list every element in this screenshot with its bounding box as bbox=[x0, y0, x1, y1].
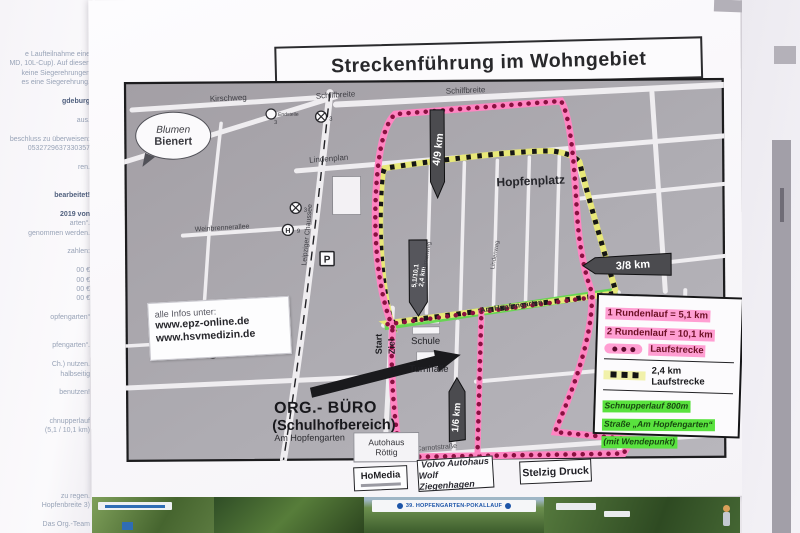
paper-text-line: arten“. bbox=[0, 219, 90, 228]
banner-logo-icon bbox=[397, 503, 403, 509]
ziel-label: Ziel bbox=[387, 339, 397, 355]
banner-text: 39. HOPFENGARTEN-POKALLAUF bbox=[406, 503, 502, 509]
right-paper bbox=[742, 0, 800, 533]
paper-text-line bbox=[0, 200, 90, 209]
paper-text-line: Ch.) nutzen. bbox=[0, 360, 90, 369]
place-label-schule: Schule bbox=[411, 336, 440, 347]
paper-text-line bbox=[0, 454, 90, 463]
paper-text-line: opfengarten“ bbox=[0, 313, 90, 322]
paper-text-line: pfengarten“. bbox=[0, 341, 90, 350]
place-label-hopfenplatz: Hopfenplatz bbox=[496, 173, 565, 190]
paper-text-line bbox=[0, 435, 90, 444]
small-sign bbox=[556, 503, 596, 510]
street-label-schilfbreite-2: Schilfbreite bbox=[446, 85, 486, 96]
paper-text-line bbox=[0, 511, 90, 520]
paper-text-line: benutzen! bbox=[0, 388, 90, 397]
legend-schnupperlauf-street: Straße „Am Hopfengarten“ bbox=[602, 419, 715, 431]
right-paper-bar bbox=[772, 140, 791, 533]
paper-text-line: ren. bbox=[0, 163, 90, 172]
paper-text-line bbox=[0, 332, 90, 341]
autohaus-line2: Röttig bbox=[375, 447, 397, 457]
pink-route-symbol bbox=[604, 343, 642, 354]
schule-building bbox=[413, 327, 440, 334]
right-paper-block bbox=[774, 46, 796, 64]
photo-banner: 39. HOPFENGARTEN-POKALLAUF bbox=[364, 497, 544, 533]
map-legend: 1 Rundenlauf = 5,1 km 2 Rundenlauf = 10,… bbox=[593, 293, 744, 439]
start-label: Start bbox=[374, 334, 384, 355]
blue-sign bbox=[122, 522, 133, 530]
paper-text-line: gdeburg bbox=[0, 97, 90, 106]
paper-text-line: Das Org.-Team bbox=[0, 520, 90, 529]
route-poster: Streckenführung im Wohngebiet bbox=[88, 0, 743, 500]
paper-text-line: chnupperlauf bbox=[0, 417, 90, 426]
small-banner bbox=[98, 502, 172, 510]
paper-text-line: zahlen: bbox=[0, 247, 90, 256]
svg-text:3: 3 bbox=[274, 120, 277, 126]
paper-text-line bbox=[0, 172, 90, 181]
paper-text-line bbox=[0, 323, 90, 332]
org-line1: ORG.- BÜRO bbox=[274, 397, 377, 417]
info-box: alle Infos unter: www.epz-online.de www.… bbox=[147, 296, 292, 361]
paper-text-line: Hopfenbreite 3) bbox=[0, 501, 90, 510]
paper-text-line: halbseitig bbox=[0, 370, 90, 379]
paper-text-line: keine Siegerehrungen bbox=[0, 69, 90, 78]
sponsor-volvo-line2: Wolf Ziegenhagen bbox=[418, 466, 493, 492]
sponsor-homedia-name: HoMedia bbox=[361, 470, 401, 482]
paper-text-line: 00 € bbox=[0, 285, 90, 294]
paper-text-line bbox=[0, 153, 90, 162]
paper-text-line: 00 € bbox=[0, 276, 90, 285]
paper-text-line bbox=[0, 304, 90, 313]
parking-icon: P bbox=[320, 252, 334, 266]
legend-schnupperlauf: Schnupperlauf 800m bbox=[603, 400, 691, 412]
paper-text-line: es eine Siegerehrung. bbox=[0, 78, 90, 87]
legend-wendepunkt: (mit Wendepunkt) bbox=[601, 436, 677, 448]
legend-divider bbox=[603, 389, 733, 394]
paper-text-line bbox=[0, 351, 90, 360]
building bbox=[332, 176, 360, 214]
paper-text-line: 0532729637330357 bbox=[0, 144, 90, 153]
sponsor-volvo: Volvo Autohaus Wolf Ziegenhagen bbox=[417, 456, 495, 492]
photo-trees bbox=[214, 497, 364, 533]
paper-text-line bbox=[0, 379, 90, 388]
banner-logo-icon bbox=[505, 503, 511, 509]
sponsor-homedia-subtitle bbox=[361, 482, 401, 487]
paper-text-line bbox=[0, 125, 90, 134]
paper-text-line bbox=[0, 257, 90, 266]
legend-round1: 1 Rundenlauf = 5,1 km bbox=[605, 307, 710, 322]
legend-laufstrecke-2: Laufstrecke bbox=[651, 376, 704, 387]
legend-divider bbox=[604, 358, 734, 363]
event-banner: 39. HOPFENGARTEN-POKALLAUF bbox=[372, 500, 536, 512]
paper-text-line bbox=[0, 445, 90, 454]
paper-text-line: 00 € bbox=[0, 266, 90, 275]
yellow-route-symbol bbox=[603, 370, 645, 380]
paper-text-line: 2019 von bbox=[0, 210, 90, 219]
paper-text-line bbox=[0, 398, 90, 407]
photo-signs bbox=[92, 497, 214, 533]
street-label-kirschweg: Kirschweg bbox=[210, 93, 247, 104]
sponsor-stelzig: Stelzig Druck bbox=[519, 459, 592, 485]
paper-text-line: 00 € bbox=[0, 294, 90, 303]
svg-text:H: H bbox=[285, 228, 290, 235]
legend-laufstrecke: Laufstrecke bbox=[648, 344, 706, 358]
paper-text-line bbox=[0, 238, 90, 247]
paper-text-line: (5,1 / 10,1 km) bbox=[0, 426, 90, 435]
paper-text-line bbox=[0, 407, 90, 416]
autohaus-line1: Autohaus bbox=[368, 437, 404, 447]
paper-text-line bbox=[0, 482, 90, 491]
photo-strip: 39. HOPFENGARTEN-POKALLAUF bbox=[92, 497, 740, 533]
autohaus-roettig-box: Autohaus Röttig bbox=[353, 432, 419, 462]
paper-text-line: zu regen. bbox=[0, 492, 90, 501]
runner-figure bbox=[723, 505, 730, 512]
notice-board-photo: e Laufteilnahme eineMD, 10L-Cup). Auf di… bbox=[0, 0, 800, 533]
paper-text-line bbox=[0, 473, 90, 482]
sponsor-homedia: HoMedia bbox=[353, 465, 408, 491]
left-paper: e Laufteilnahme eineMD, 10L-Cup). Auf di… bbox=[0, 0, 95, 533]
svg-text:Endstelle: Endstelle bbox=[278, 112, 299, 118]
paper-text-line bbox=[0, 106, 90, 115]
paper-text-line: beschluss zu überweisen: bbox=[0, 135, 90, 144]
legend-round2: 2 Rundenlauf = 10,1 km bbox=[605, 326, 715, 341]
org-line3: Am Hopfengarten bbox=[274, 433, 345, 443]
photo-finish bbox=[544, 497, 740, 533]
place-label-turnhalle: Turnhalle bbox=[409, 364, 448, 375]
paper-text-line bbox=[0, 464, 90, 473]
svg-text:3/8 km: 3/8 km bbox=[616, 258, 651, 272]
sponsor-stelzig-name: Stelzig Druck bbox=[522, 464, 589, 479]
bubble-line2: Bienert bbox=[154, 135, 192, 147]
paper-text-line bbox=[0, 182, 90, 191]
legend-24km: 2,4 km bbox=[652, 365, 705, 376]
paper-text-line: aus. bbox=[0, 116, 90, 125]
paper-text-line bbox=[0, 88, 90, 97]
small-sign bbox=[604, 511, 630, 517]
paper-text-line: bearbeitet! bbox=[0, 191, 90, 200]
svg-text:P: P bbox=[324, 255, 331, 266]
paper-text-line: e Laufteilnahme eine bbox=[0, 50, 90, 59]
paper-text-line: genommen werden. bbox=[0, 229, 90, 238]
bubble-line1: Blumen bbox=[156, 124, 190, 135]
paper-text-line: MD, 10L-Cup). Auf diesen bbox=[0, 59, 90, 68]
km-marker-1-6: 1/6 km bbox=[449, 378, 465, 442]
